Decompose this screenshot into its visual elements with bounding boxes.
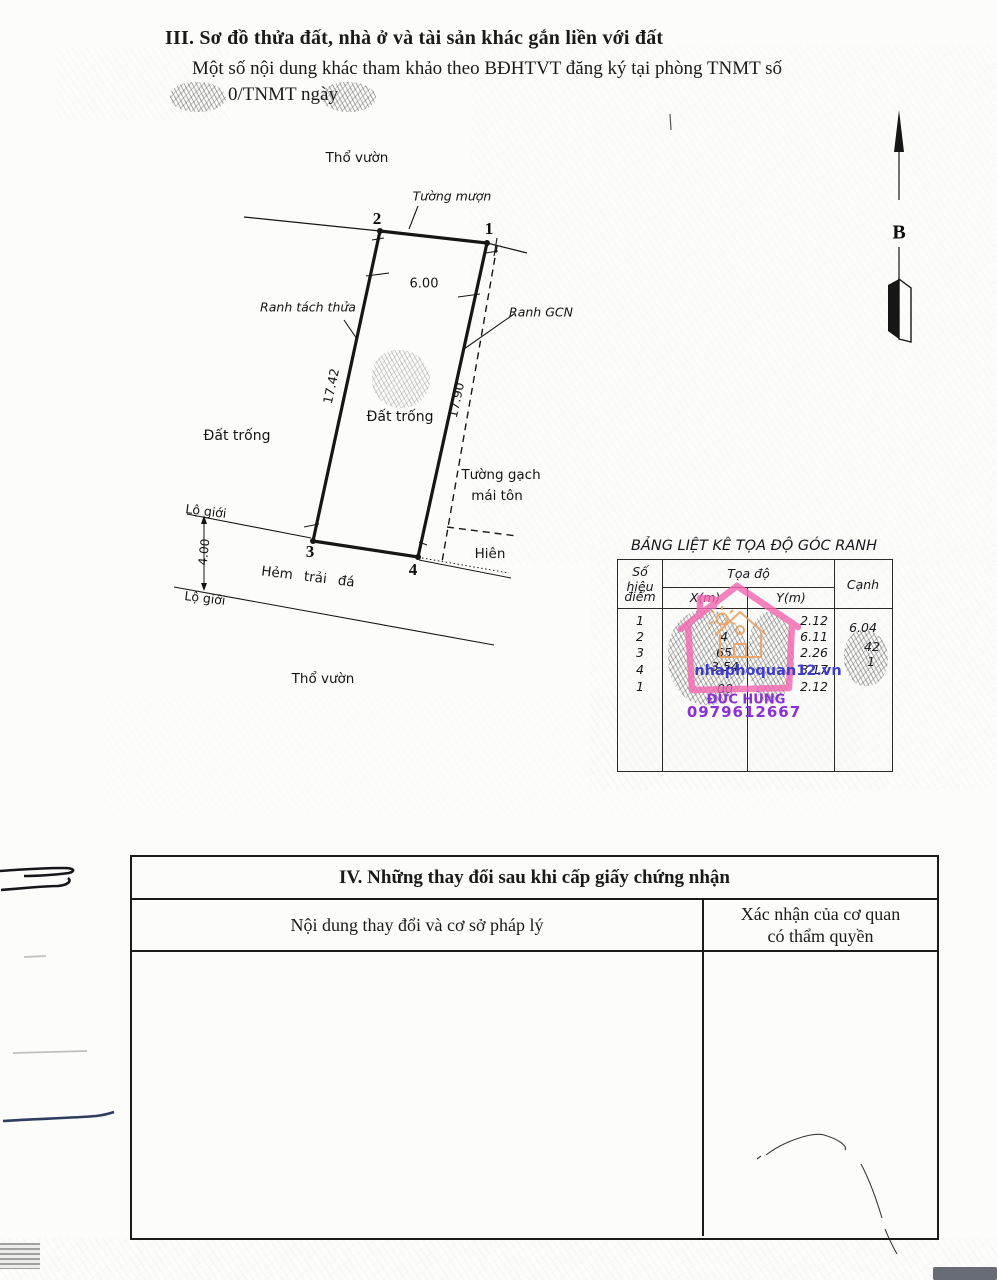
tick-mark xyxy=(372,238,384,240)
redaction-scribble xyxy=(170,82,226,112)
label-mai-ton: mái tôn xyxy=(471,488,523,504)
section3-subtitle-line1: Một số nội dung khác tham khảo theo BĐHT… xyxy=(192,58,782,80)
tick-mark xyxy=(366,273,389,276)
point-4: 4 xyxy=(409,560,418,580)
row-y-value: 6.11 xyxy=(748,630,828,644)
label-lo-gioi-1: Lộ giới xyxy=(185,501,228,521)
label-tho-vuon-bottom: Thổ vườn xyxy=(292,671,355,687)
tick-mark xyxy=(458,294,480,297)
tick-mark xyxy=(494,238,497,256)
label-lo-gioi-2: Lộ giới xyxy=(184,588,227,608)
canh-fragment: 42 xyxy=(864,640,880,654)
row-y-value: 2.12 xyxy=(748,614,828,628)
north-letter: B xyxy=(892,222,905,245)
label-ranh-gcn: Ranh GCN xyxy=(509,305,573,320)
watermark-phone: 0979612667 xyxy=(687,703,801,721)
scanned-certificate-page: III. Sơ đồ thửa đất, nhà ở và tài sản kh… xyxy=(0,0,997,1280)
tick-mark xyxy=(486,251,498,253)
fence-line-left xyxy=(244,217,380,231)
leader-tuong-muon xyxy=(409,206,418,229)
dim-17-42: 17.42 xyxy=(320,367,342,405)
col-header-point-2: điểm xyxy=(618,589,662,604)
scan-texture xyxy=(0,1238,997,1280)
row-stt: 1 xyxy=(618,614,662,628)
point-2: 2 xyxy=(373,209,382,229)
label-tuong-muon: Tường mượn xyxy=(413,189,492,204)
scan-stripe-artifact xyxy=(0,1243,40,1269)
col-header-x: X(m) xyxy=(663,590,747,605)
dim-6m: 6.00 xyxy=(410,277,439,292)
row-stt: 4 xyxy=(618,663,662,677)
section4-table: IV. Những thay đổi sau khi cấp giấy chứn… xyxy=(130,855,939,1240)
section3-subtitle-line2: 0/TNMT ngày xyxy=(228,84,338,106)
section4-col-right-header-1: Xác nhận của cơ quan xyxy=(741,903,900,926)
row-stt: 2 xyxy=(618,630,662,644)
section4-col-right-header-2: có thẩm quyền xyxy=(768,925,874,948)
fence-line-right xyxy=(487,243,527,253)
tick-mark xyxy=(419,542,427,545)
watermark-site: nhaphoquan12.vn xyxy=(694,663,841,679)
label-hien: Hiên xyxy=(475,546,506,562)
section4-col-left-header: Nội dung thay đổi và cơ sở pháp lý xyxy=(290,915,543,936)
dim-4m: 4.00 xyxy=(196,538,213,566)
scan-smudge xyxy=(933,1267,997,1280)
label-tho-vuon-top: Thổ vườn xyxy=(326,150,389,166)
row-stt: 1 xyxy=(618,680,662,694)
dim-17-90: 17.90 xyxy=(445,381,467,419)
scan-mark xyxy=(670,114,671,130)
label-dat-trong-outside: Đất trống xyxy=(204,428,271,444)
col-header-y: Y(m) xyxy=(748,590,834,605)
coord-table-title: BẢNG LIỆT KÊ TỌA ĐỘ GÓC RANH xyxy=(617,538,891,554)
label-dat-trong-inside: Đất trống xyxy=(367,409,434,425)
label-tuong-gach: Tường gạch xyxy=(461,467,540,483)
row-x-fragment: 4 xyxy=(720,630,728,644)
alley-edge-line xyxy=(419,560,511,578)
hien-dashed-line xyxy=(447,527,517,536)
section4-title: IV. Những thay đổi sau khi cấp giấy chứn… xyxy=(339,867,730,889)
leader-ranh-gcn xyxy=(464,314,514,349)
col-header-toado: Tọa độ xyxy=(663,566,834,581)
canh-value: 6.04 xyxy=(834,621,892,635)
label-hem-trai-da: Hẻm trải đá xyxy=(260,563,355,590)
leader-ranh-tach-thua xyxy=(344,320,357,339)
row-x-fragment: 65 xyxy=(716,646,732,660)
section4-column-divider xyxy=(702,952,704,1236)
tick-mark xyxy=(304,524,319,527)
redaction-scribble xyxy=(668,610,748,705)
label-ranh-tach-thua: Ranh tách thửa xyxy=(260,300,356,315)
point-1: 1 xyxy=(485,219,494,239)
section3-title: III. Sơ đồ thửa đất, nhà ở và tài sản kh… xyxy=(165,27,663,50)
hatch-blob xyxy=(372,350,430,408)
point-3: 3 xyxy=(306,542,315,562)
col-header-canh: Cạnh xyxy=(834,577,892,592)
section4-body xyxy=(132,952,937,1236)
row-stt: 3 xyxy=(618,646,662,660)
row-y-value: 2.26 xyxy=(748,646,828,660)
canh-fragment: 1 xyxy=(867,655,875,669)
